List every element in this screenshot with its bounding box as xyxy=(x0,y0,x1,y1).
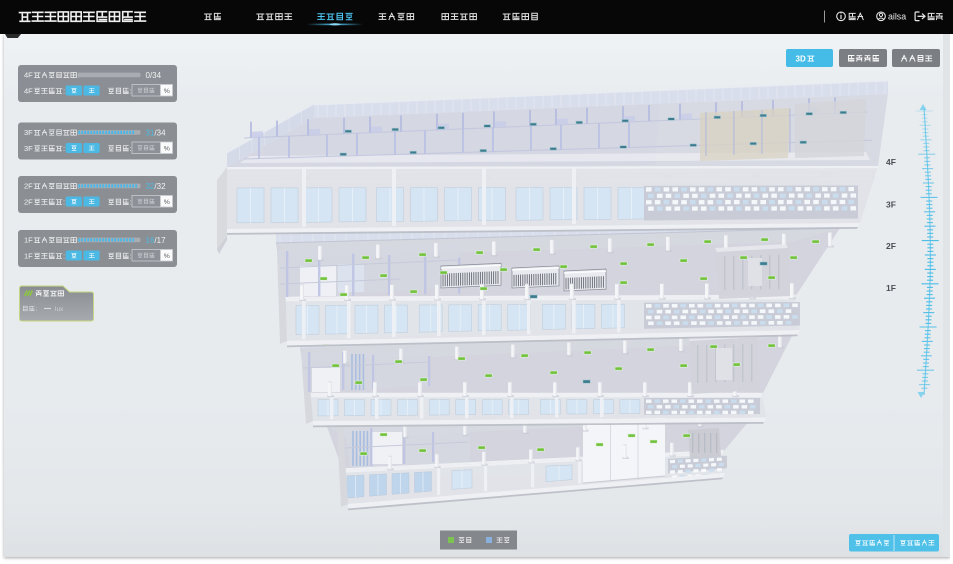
svg-text:2F: 2F xyxy=(24,182,33,191)
svg-text:3D: 3D xyxy=(796,55,806,64)
svg-text::: : xyxy=(63,197,65,206)
svg-text::: : xyxy=(130,144,132,153)
svg-text:lux: lux xyxy=(55,306,64,313)
svg-text:%: % xyxy=(164,146,170,153)
svg-text:1F: 1F xyxy=(886,283,896,293)
svg-text:3F: 3F xyxy=(24,144,33,153)
svg-text::: : xyxy=(63,86,65,95)
svg-text:%: % xyxy=(164,253,170,260)
svg-text::: : xyxy=(36,306,38,313)
svg-text:%: % xyxy=(164,199,170,206)
svg-text:ailsa: ailsa xyxy=(888,11,906,21)
svg-text::: : xyxy=(130,251,132,260)
svg-text:%: % xyxy=(164,88,170,95)
svg-text:3F: 3F xyxy=(24,128,33,137)
svg-text:0/34: 0/34 xyxy=(146,71,162,80)
svg-text:1F: 1F xyxy=(24,251,33,260)
svg-text:1F: 1F xyxy=(24,236,33,245)
svg-text:3F: 3F xyxy=(886,200,896,210)
svg-text::: : xyxy=(63,144,65,153)
svg-text::: : xyxy=(63,251,65,260)
svg-text:4F: 4F xyxy=(24,71,33,80)
svg-text:/17: /17 xyxy=(154,236,166,245)
svg-text:2F: 2F xyxy=(24,197,33,206)
svg-text:2F: 2F xyxy=(886,241,896,251)
svg-text::: : xyxy=(130,197,132,206)
svg-text::: : xyxy=(130,86,132,95)
svg-text:/32: /32 xyxy=(154,182,166,191)
svg-text:4F: 4F xyxy=(24,86,33,95)
svg-text:/34: /34 xyxy=(154,129,166,138)
svg-text:4F: 4F xyxy=(886,157,896,167)
